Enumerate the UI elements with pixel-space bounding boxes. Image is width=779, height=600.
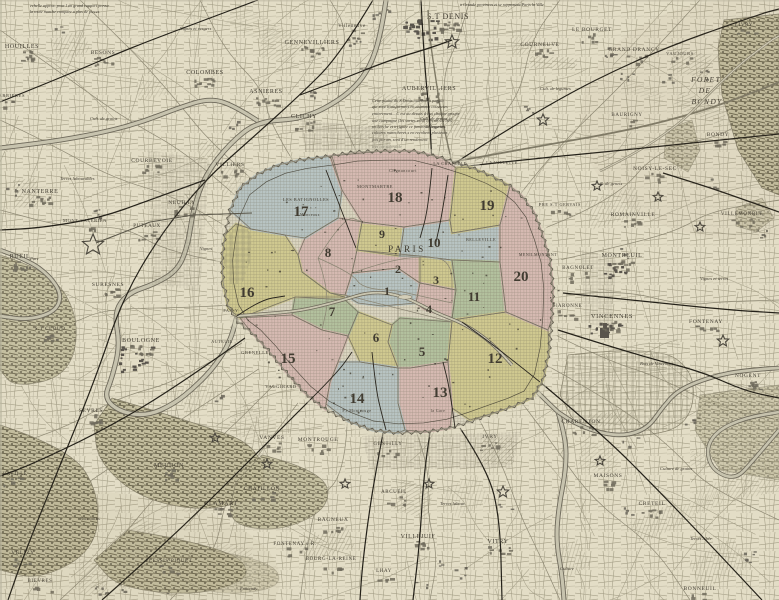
svg-text:la toute marche compare a plus: la toute marche compare a plus de pieces [30,9,100,14]
svg-text:a Grande provinces et se rappo: a Grande provinces et se rapportent Pari… [460,2,544,7]
svg-text:echelle approx. pour l an gran: echelle approx. pour l an grand rapport … [30,3,109,8]
